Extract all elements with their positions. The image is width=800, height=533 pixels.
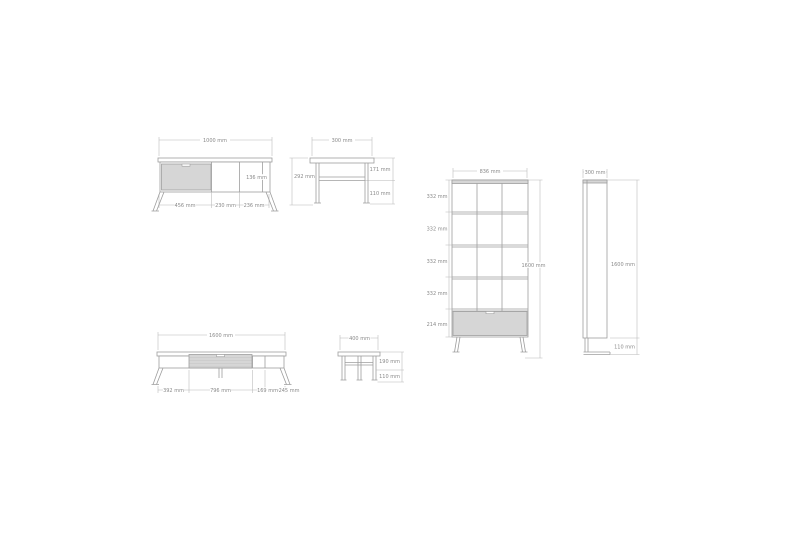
dim-depth-label: 300 mm: [332, 138, 353, 144]
drawer-handle-notch: [217, 355, 225, 357]
drawer-handle-notch: [486, 312, 494, 314]
dim-seg-b-label: 796 mm: [210, 388, 231, 394]
drawer-front: [453, 312, 527, 336]
tv1600-outline: [152, 352, 292, 385]
dim-drawer-row-label: 214 mm: [427, 322, 448, 328]
legs: [341, 356, 378, 380]
rail: [319, 177, 365, 181]
dim-seg-b-label: 230 mm: [215, 203, 236, 209]
dim-upper-label: 171 mm: [370, 167, 391, 173]
legs: [314, 163, 370, 203]
dim-seg-a-label: 456 mm: [175, 203, 196, 209]
dim-inner-height-label: 136 mm: [246, 175, 267, 181]
shelf-outline: [452, 180, 528, 352]
dim-row4-label: 332 mm: [427, 291, 448, 297]
view-tv1600-front: 1600 mm 392 mm 796 mm 169 mm 245 mm: [140, 320, 320, 405]
dim-seg-d-label: 245 mm: [279, 388, 300, 394]
tv400-outline: [338, 352, 380, 380]
dim-row1-label: 332 mm: [427, 194, 448, 200]
view-shelf-front: 836 mm 332 mm 332 mm 332 mm 332 mm 214 m…: [425, 158, 560, 363]
top-panel: [310, 158, 374, 163]
drawer-front: [162, 164, 212, 190]
technical-drawing-canvas: 1000 mm 136 mm 456 mm 230 mm 236 mm 300 …: [0, 0, 800, 533]
dim-leg-label: 110 mm: [614, 345, 635, 351]
tv300-outline: [310, 158, 374, 203]
view-tv400-side: 400 mm 190 mm 110 mm: [325, 325, 425, 395]
top-panel: [158, 158, 272, 162]
top-strip: [452, 180, 528, 184]
dim-leg-label: 110 mm: [379, 374, 400, 380]
dim-upper-label: 190 mm: [379, 359, 400, 365]
dim-height-label: 1600 mm: [521, 263, 545, 269]
dim-seg-a-label: 392 mm: [163, 388, 184, 394]
dim-height-label: 292 mm: [294, 174, 315, 180]
dim-row2-label: 332 mm: [427, 226, 448, 232]
dim-row3-label: 332 mm: [427, 259, 448, 265]
body: [583, 180, 607, 338]
dim-depth-label: 300 mm: [585, 170, 606, 176]
dim-seg-c-label: 236 mm: [244, 203, 265, 209]
legs: [152, 368, 292, 385]
dim-width-label: 1000 mm: [203, 138, 227, 144]
view-tv300-side: 300 mm 292 mm 171 mm 110 mm: [278, 125, 403, 225]
dim-width-label: 1600 mm: [209, 333, 233, 339]
drawer-handle-notch: [182, 164, 190, 166]
top-panel: [338, 352, 380, 356]
rail: [345, 363, 373, 366]
view-shelf-side: 300 mm 1600 mm 110 mm: [565, 158, 675, 363]
dim-seg-c-label: 169 mm: [257, 388, 278, 394]
dim-width-label: 836 mm: [480, 169, 501, 175]
center-support: [219, 368, 222, 378]
top-strip: [583, 180, 607, 183]
leg-foot: [584, 338, 611, 355]
dim-height-label: 1600 mm: [611, 262, 635, 268]
legs: [453, 337, 528, 352]
dim-leg-label: 110 mm: [370, 191, 391, 197]
shelfside-outline: [583, 180, 610, 355]
dim-depth-label: 400 mm: [349, 336, 370, 342]
